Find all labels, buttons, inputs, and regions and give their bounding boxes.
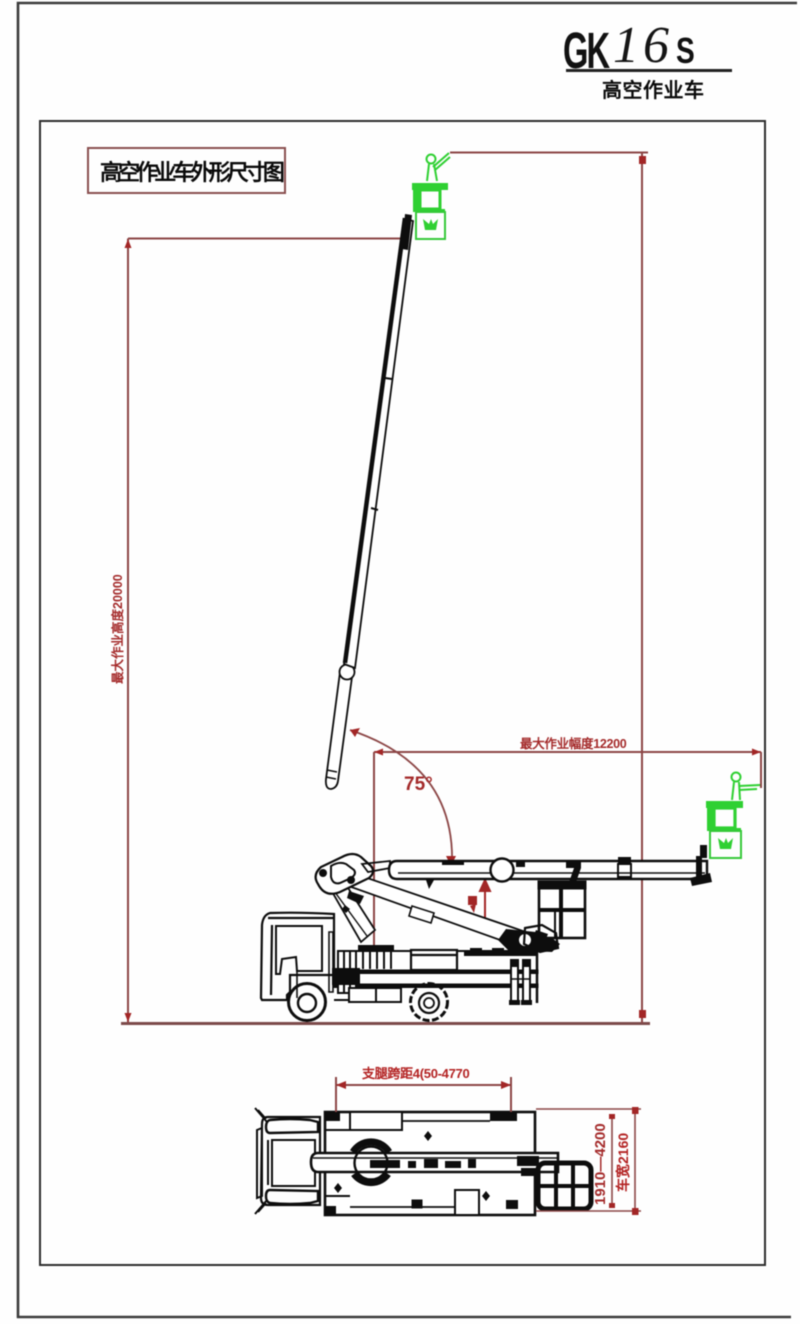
svg-text:最大作业高度20000: 最大作业高度20000 bbox=[110, 574, 125, 684]
svg-text:75°: 75° bbox=[404, 774, 433, 795]
svg-text:最大作业幅度12200: 最大作业幅度12200 bbox=[520, 736, 627, 751]
svg-text:车宽2160: 车宽2160 bbox=[615, 1133, 631, 1192]
svg-text:1910—4200: 1910—4200 bbox=[592, 1123, 609, 1205]
svg-text:支腿跨距4(50-4770: 支腿跨距4(50-4770 bbox=[361, 1066, 469, 1081]
